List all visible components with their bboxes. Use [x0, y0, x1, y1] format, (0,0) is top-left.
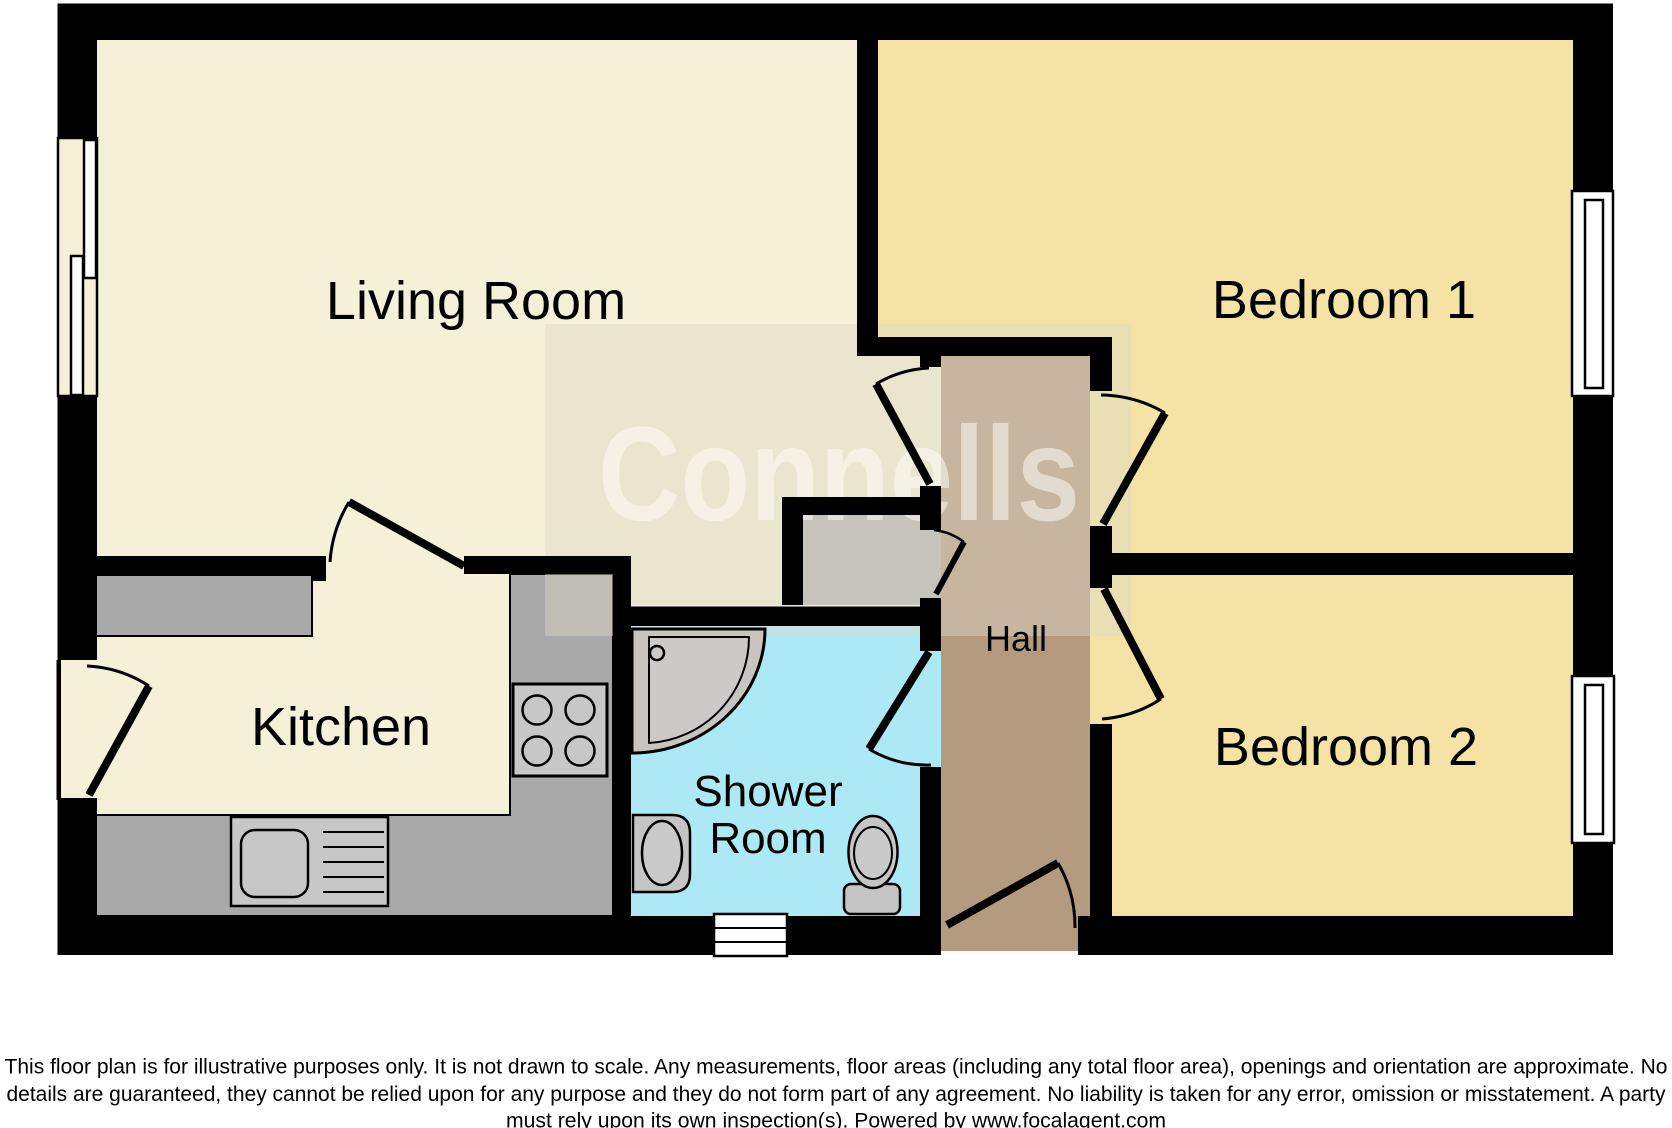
- svg-text:Connells: Connells: [598, 400, 1080, 549]
- svg-text:Living Room: Living Room: [326, 271, 626, 331]
- svg-text:details are guaranteed, they c: details are guaranteed, they cannot be r…: [7, 1083, 1666, 1106]
- svg-text:Bedroom 2: Bedroom 2: [1214, 717, 1478, 777]
- svg-text:This floor plan is for illustr: This floor plan is for illustrative purp…: [5, 1056, 1668, 1079]
- svg-text:Room: Room: [709, 814, 826, 863]
- svg-text:must rely upon its own inspect: must rely upon its own inspection(s). Po…: [506, 1110, 1166, 1128]
- svg-text:Hall: Hall: [985, 618, 1047, 659]
- svg-text:Kitchen: Kitchen: [251, 697, 431, 757]
- svg-text:Bedroom 1: Bedroom 1: [1212, 270, 1476, 330]
- svg-text:Shower: Shower: [693, 767, 842, 816]
